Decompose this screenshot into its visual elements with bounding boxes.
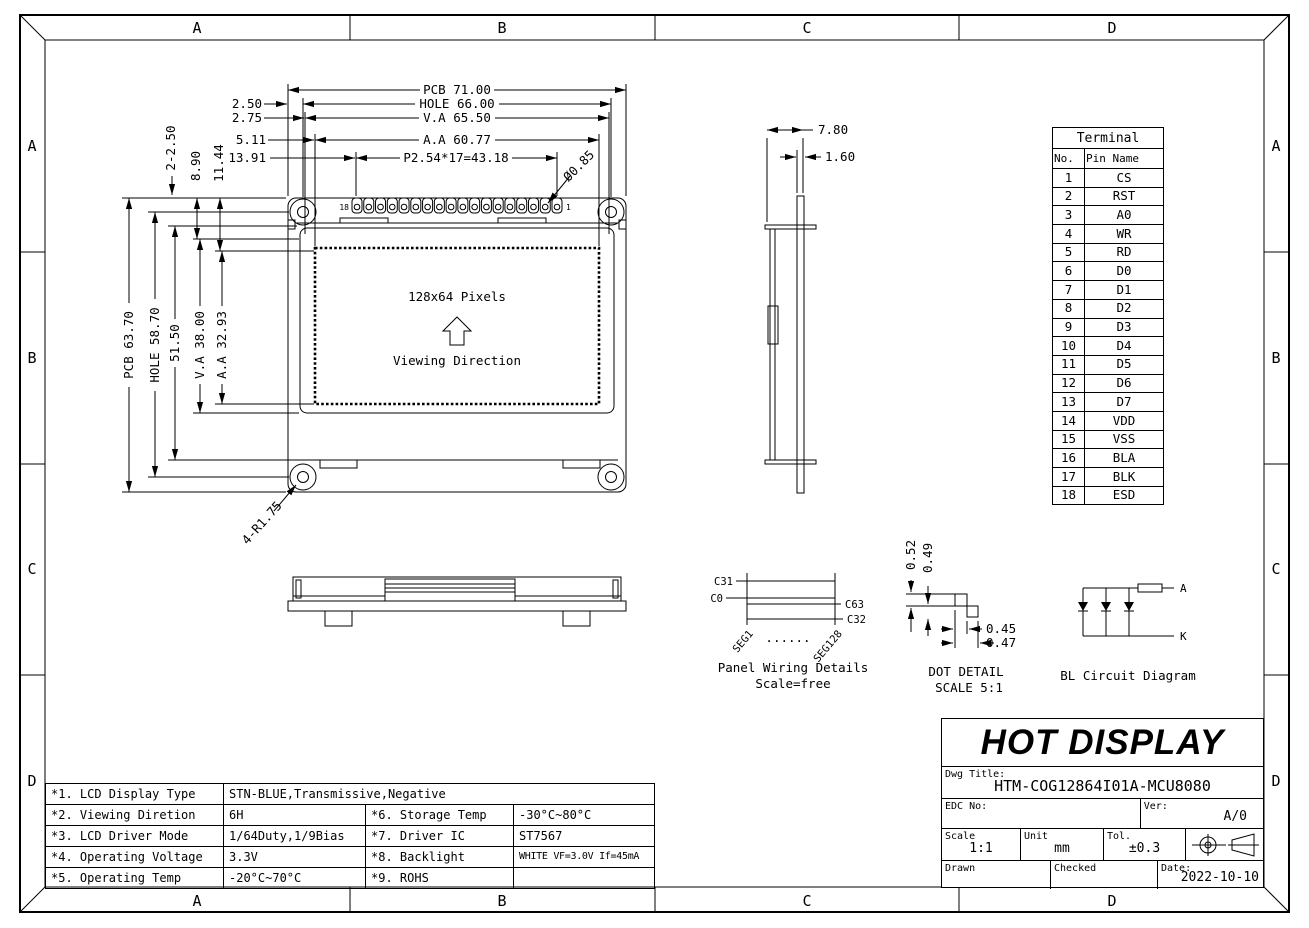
pad-hole [354,204,360,210]
connector-pad [387,198,397,213]
pad-hole [378,204,384,210]
spec-item: *3. LCD Driver Mode [46,826,224,847]
dim-offset-hole: 2.50 [232,96,262,111]
checked-cell: Checked [1051,861,1158,889]
dim-va-width: V.A 65.50 [423,110,491,125]
connector-pad [528,198,538,213]
dim-dot-h1: 0.45 [986,621,1016,636]
zone-letter: C [27,560,36,578]
spec-value: 1/64Duty,1/9Bias [224,826,366,847]
bl-circuit-title: BL Circuit Diagram [1060,668,1195,683]
dim-aa-width: A.A 60.77 [423,132,491,147]
scale-value: 1:1 [942,841,1020,856]
terminal-row: 8D2 [1053,299,1164,318]
terminal-pin-name: VDD [1085,411,1164,430]
connector-pad [446,198,456,213]
terminal-pin-name: D0 [1085,262,1164,281]
zone-letter: B [27,349,36,367]
dot-detail-scale: SCALE 5:1 [935,680,1003,695]
terminal-pin-no: 8 [1053,299,1085,318]
terminal-pin-no: 7 [1053,281,1085,300]
terminal-pin-name: A0 [1085,206,1164,225]
bottom-view [288,577,626,626]
spec-row: *3. LCD Driver Mode 1/64Duty,1/9Bias *7.… [46,826,655,847]
terminal-pin-name: D5 [1085,355,1164,374]
terminal-pin-no: 13 [1053,393,1085,412]
connector-pad [399,198,409,213]
zone-letter: D [1271,772,1280,790]
spec-row: *4. Operating Voltage 3.3V *8. Backlight… [46,847,655,868]
signature-row: Drawn Checked Date: 2022-10-10 [942,861,1263,889]
ellipsis: ...... [765,630,810,645]
viewing-direction-label: Viewing Direction [393,353,521,368]
terminal-pin-no: 11 [1053,355,1085,374]
terminal-pin-name: WR [1085,225,1164,244]
connector-pad [517,198,527,213]
terminal-pin-name: D6 [1085,374,1164,393]
lcd-glass [300,228,614,413]
date-cell: Date: 2022-10-10 [1158,861,1263,889]
terminal-pin-no: 14 [1053,411,1085,430]
dim-offset-va: 2.75 [232,110,262,125]
spec-item: *9. ROHS [366,868,514,889]
mount-hole [598,199,624,225]
lcd-module-drawing-sheet: A B C D A B C D A B C D A B C D 18 1 128… [0,0,1309,928]
terminal-pin-no: 4 [1053,225,1085,244]
terminal-row: 11D5 [1053,355,1164,374]
connector-pad [364,198,374,213]
zone-letter: D [27,772,36,790]
version-cell: Ver: A/0 [1141,799,1263,828]
dwg-title-value: HTM-COG12864I01A-MCU8080 [942,777,1263,795]
dim-offset-pitch: 13.91 [228,150,266,165]
terminal-row: 15VSS [1053,430,1164,449]
connector-pad [493,198,503,213]
spec-value: WHITE VF=3.0V If=45mA [514,847,655,868]
com-label: C32 [847,614,866,626]
terminal-pin-no: 18 [1053,486,1085,505]
terminal-table: Terminal No. Pin Name 1CS2RST3A04WR5RD6D… [1052,127,1164,505]
terminal-rows: 1CS2RST3A04WR5RD6D07D18D29D310D411D512D6… [1053,169,1164,505]
cathode-label: K [1180,630,1187,643]
connector-pad [434,198,444,213]
dim-corner-radius: 4-R1.75 [238,498,284,547]
terminal-pin-no: 16 [1053,449,1085,468]
com-label: C63 [845,599,864,611]
zone-letter: A [192,892,201,910]
side-view: 7.80 1.60 [765,122,855,493]
terminal-pin-no: 12 [1053,374,1085,393]
projection-symbol [1186,829,1263,860]
dim-total-thickness: 7.80 [818,122,848,137]
terminal-pin-no: 5 [1053,243,1085,262]
terminal-row: 14VDD [1053,411,1164,430]
drawn-cell: Drawn [942,861,1051,889]
terminal-pin-no: 15 [1053,430,1085,449]
spec-value: 6H [224,805,366,826]
dim-pin-pitch: P2.54*17=43.18 [403,150,508,165]
terminal-pin-name: RD [1085,243,1164,262]
spec-value: -30°C~80°C [514,805,655,826]
pad-hole [437,204,443,210]
terminal-pin-no: 2 [1053,187,1085,206]
connector-pads [352,198,562,213]
led-symbol [1101,602,1111,611]
pad-hole [484,204,490,210]
bl-circuit-diagram: A K BL Circuit Diagram [1060,582,1195,683]
dim-hole-width: HOLE 66.00 [419,96,494,111]
unit-cell: Unit mm [1021,829,1104,860]
terminal-row: 1CS [1053,169,1164,188]
terminal-pin-name: D4 [1085,337,1164,356]
zone-letter: D [1107,892,1116,910]
com-label: C31 [714,576,733,588]
panel-wiring-details: C31 C0 C63 C32 SEG1 SEG128 ...... Panel … [710,573,868,691]
terminal-pin-name: D7 [1085,393,1164,412]
connector-pad [540,198,550,213]
terminal-row: 13D7 [1053,393,1164,412]
terminal-pin-name: BLA [1085,449,1164,468]
terminal-pin-name: D2 [1085,299,1164,318]
spec-item: *1. LCD Display Type [46,784,224,805]
mount-hole [290,464,316,490]
date-value: 2022-10-10 [1181,870,1259,885]
connector-pad [458,198,468,213]
spec-item: *2. Viewing Diretion [46,805,224,826]
edc-no-cell: EDC No: [942,799,1141,828]
zone-letter: A [1271,137,1280,155]
terminal-row: 3A0 [1053,206,1164,225]
panel-wiring-title: Panel Wiring Details [718,660,869,675]
pad-hole [519,204,525,210]
terminal-row: 10D4 [1053,337,1164,356]
zone-letter: D [1107,19,1116,37]
dim-offset-aa-v: 11.44 [211,144,226,182]
spec-item: *8. Backlight [366,847,514,868]
dim-pcb-height: PCB 63.70 [121,311,136,379]
connector-pad [411,198,421,213]
edc-no-label: EDC No: [945,801,987,812]
pad-hole [460,204,466,210]
spec-value: STN-BLUE,Transmissive,Negative [224,784,655,805]
led-symbol [1078,602,1088,611]
scale-row: Scale 1:1 Unit mm Tol. ±0.3 [942,829,1263,861]
dim-dot-h2: 0.47 [986,635,1016,650]
dim-offset-va-v: 8.90 [188,151,203,181]
tolerance-cell: Tol. ±0.3 [1104,829,1186,860]
drawn-label: Drawn [945,863,975,874]
terminal-row: 12D6 [1053,374,1164,393]
zone-letter: B [497,19,506,37]
terminal-pin-name: BLK [1085,468,1164,487]
zone-letter: C [1271,560,1280,578]
pad-hole [425,204,431,210]
screen-resolution-label: 128x64 Pixels [408,289,506,304]
edc-row: EDC No: Ver: A/0 [942,799,1263,829]
mount-hole [598,464,624,490]
scale-cell: Scale 1:1 [942,829,1021,860]
pad-hole [366,204,372,210]
connector-pad [470,198,480,213]
panel-wiring-scale: Scale=free [755,676,830,691]
connector-pad [505,198,515,213]
anode-label: A [1180,582,1187,595]
dim-hole-height: HOLE 58.70 [147,307,162,382]
zone-letter: A [192,19,201,37]
zone-letter: B [1271,349,1280,367]
spec-item: *4. Operating Voltage [46,847,224,868]
zone-letter: A [27,137,36,155]
dim-pcb-thickness: 1.60 [825,149,855,164]
connector-pad [423,198,433,213]
pad-hole [448,204,454,210]
terminal-row: 6D0 [1053,262,1164,281]
version-value: A/0 [1224,809,1247,824]
pad-hole [389,204,395,210]
spec-value [514,868,655,889]
dim-offset-aa: 5.11 [236,132,266,147]
terminal-col-pin-name: Pin Name [1085,149,1164,169]
dim-aa-height: A.A 32.93 [214,311,229,379]
terminal-pin-no: 17 [1053,468,1085,487]
terminal-pin-name: CS [1085,169,1164,188]
terminal-pin-name: RST [1085,187,1164,206]
spec-value: 3.3V [224,847,366,868]
terminal-row: 2RST [1053,187,1164,206]
dim-pin-hole-dia: Ø0.85 [560,147,597,184]
terminal-pin-no: 1 [1053,169,1085,188]
connector-pad [481,198,491,213]
spec-row: *5. Operating Temp -20°C~70°C *9. ROHS [46,868,655,889]
pin-number-18: 18 [339,203,349,212]
terminal-row: 9D3 [1053,318,1164,337]
terminal-table-title: Terminal [1053,128,1164,149]
pad-hole [531,204,537,210]
connector-pad [376,198,386,213]
terminal-pin-no: 3 [1053,206,1085,225]
terminal-row: 17BLK [1053,468,1164,487]
spec-row: *1. LCD Display Type STN-BLUE,Transmissi… [46,784,655,805]
zone-letter: C [802,892,811,910]
viewing-direction-arrow-icon [443,317,471,345]
spec-item: *5. Operating Temp [46,868,224,889]
dim-conn-height: 51.50 [167,324,182,362]
terminal-pin-no: 9 [1053,318,1085,337]
title-block: HOT DISPLAY Dwg Title: HTM-COG12864I01A-… [941,718,1264,888]
dim-dot-v1: 0.52 [903,540,918,570]
terminal-pin-no: 10 [1053,337,1085,356]
company-name: HOT DISPLAY [942,719,1263,767]
dim-dot-v2: 0.49 [920,543,935,573]
terminal-pin-name: ESD [1085,486,1164,505]
connector-pad [352,198,362,213]
terminal-pin-no: 6 [1053,262,1085,281]
zone-letter: B [497,892,506,910]
pin-number-1: 1 [566,203,571,212]
dot-detail-title: DOT DETAIL [928,664,1003,679]
version-label: Ver: [1144,801,1168,812]
spec-value: ST7567 [514,826,655,847]
checked-label: Checked [1054,863,1096,874]
terminal-pin-name: D3 [1085,318,1164,337]
viewing-area-border [315,248,599,404]
spec-value: -20°C~70°C [224,868,366,889]
pad-hole [507,204,513,210]
spec-table: *1. LCD Display Type STN-BLUE,Transmissi… [45,783,655,889]
connector-pad [552,198,562,213]
terminal-row: 18ESD [1053,486,1164,505]
resistor-symbol [1138,584,1162,592]
terminal-col-no: No. [1053,149,1085,169]
pad-hole [472,204,478,210]
terminal-row: 16BLA [1053,449,1164,468]
dot-detail: 0.52 0.49 0.45 0.47 DOT DETAIL SCALE 5:1 [903,540,1016,695]
terminal-row: 4WR [1053,225,1164,244]
terminal-row: 5RD [1053,243,1164,262]
spec-row: *2. Viewing Diretion 6H *6. Storage Temp… [46,805,655,826]
zone-letter: C [802,19,811,37]
seg-label: SEG1 [730,628,755,655]
dim-va-height: V.A 38.00 [192,311,207,379]
pad-hole [554,204,560,210]
dwg-title-row: Dwg Title: HTM-COG12864I01A-MCU8080 [942,767,1263,799]
unit-value: mm [1021,841,1103,856]
pad-hole [401,204,407,210]
spec-item: *6. Storage Temp [366,805,514,826]
dim-mount-hole: 2-2.50 [163,125,178,170]
pad-hole [413,204,419,210]
mount-hole [290,199,316,225]
led-symbol [1124,602,1134,611]
dim-pcb-width: PCB 71.00 [423,82,491,97]
terminal-row: 7D1 [1053,281,1164,300]
terminal-pin-name: D1 [1085,281,1164,300]
spec-item: *7. Driver IC [366,826,514,847]
terminal-pin-name: VSS [1085,430,1164,449]
projection-cell [1186,829,1263,860]
front-view: 18 1 128x64 Pixels Viewing Direction PCB… [119,82,626,547]
com-label: C0 [710,593,723,605]
pad-hole [542,204,548,210]
tolerance-value: ±0.3 [1104,841,1185,856]
pad-hole [495,204,501,210]
